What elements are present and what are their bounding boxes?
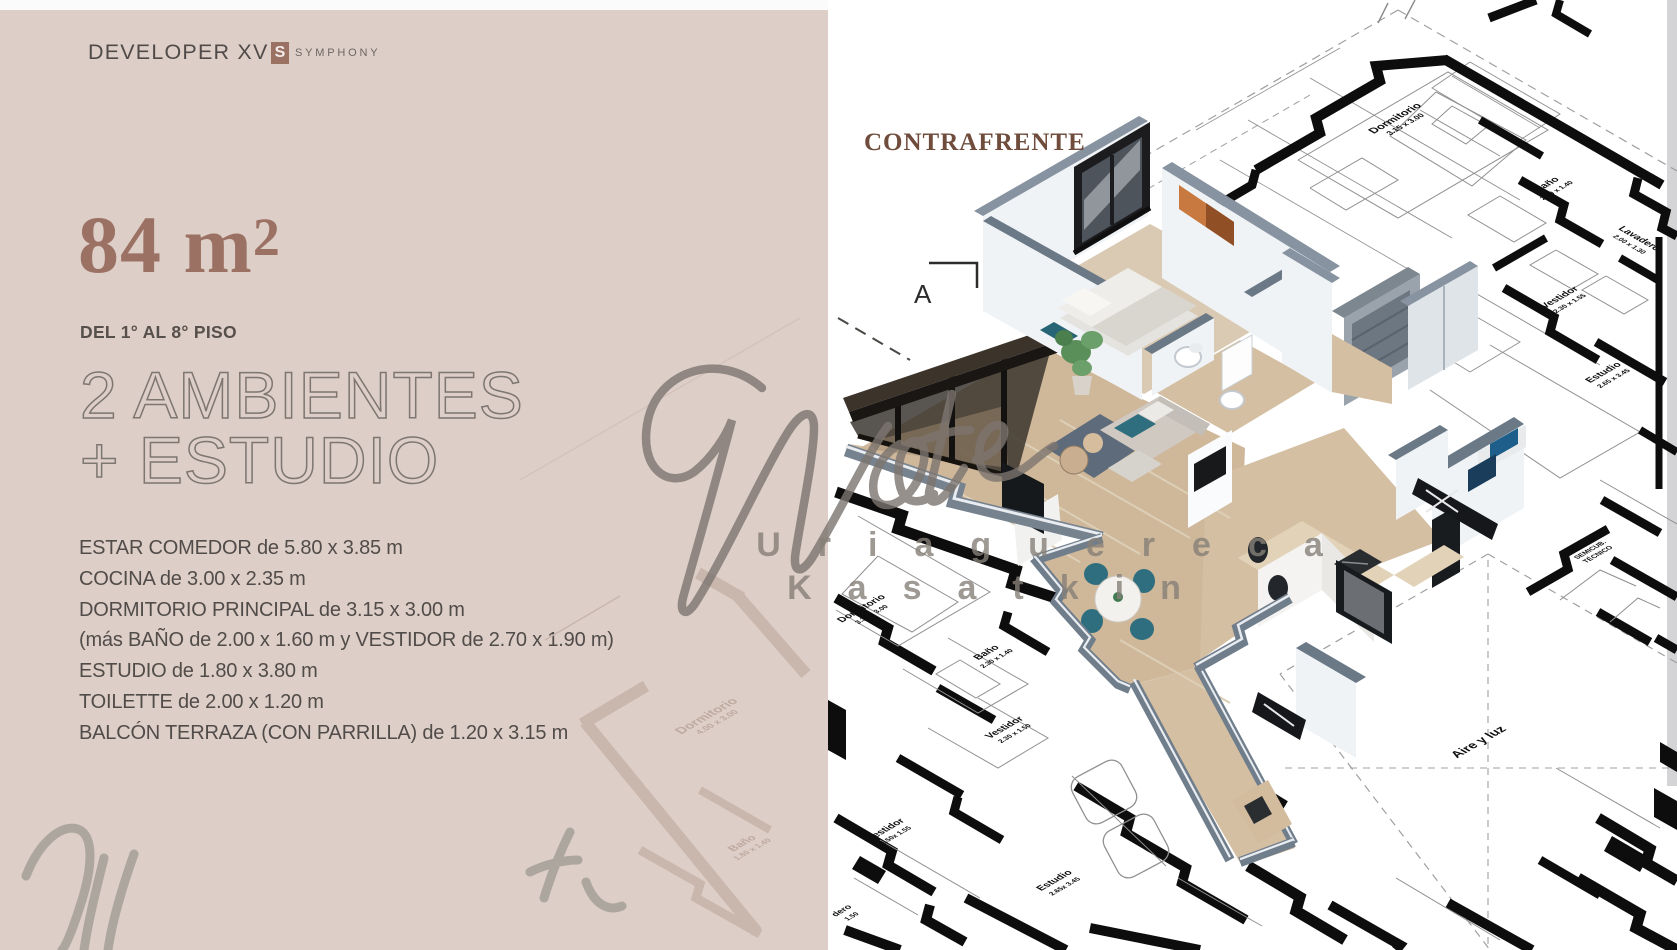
svg-text:Uriaguereca: Uriaguereca (756, 526, 1360, 564)
svg-text:A: A (914, 279, 932, 309)
svg-text:CONTRAFRENTE: CONTRAFRENTE (864, 129, 1086, 156)
svg-text:Kasatkin: Kasatkin (787, 569, 1217, 607)
